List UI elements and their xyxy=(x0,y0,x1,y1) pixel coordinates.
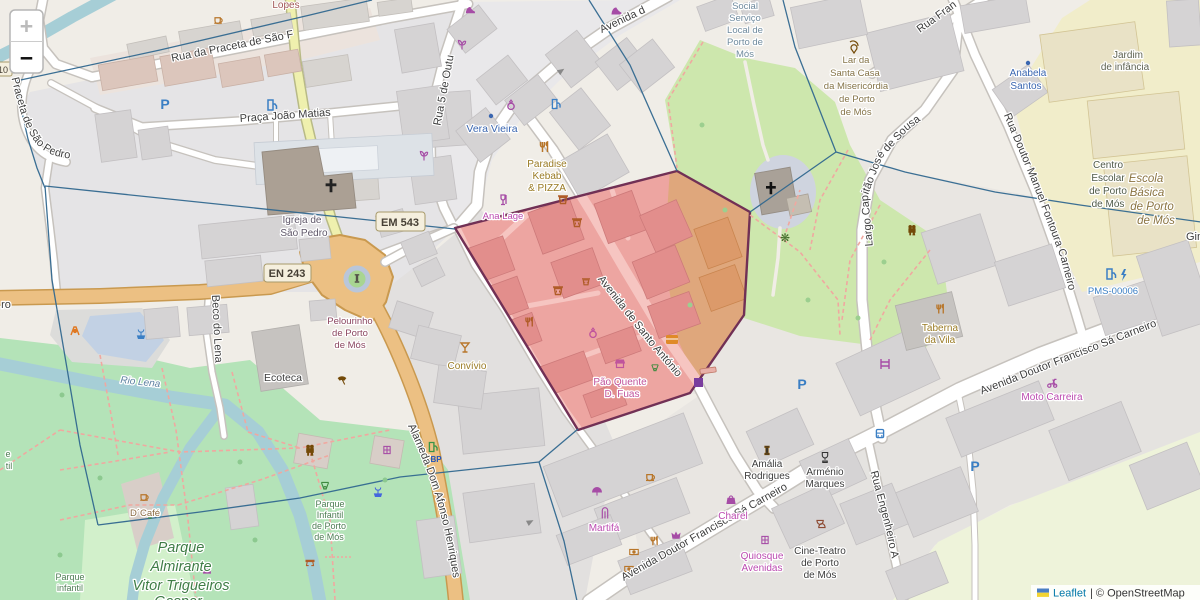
svg-text:e: e xyxy=(5,449,10,459)
svg-text:Vitor Trigueiros: Vitor Trigueiros xyxy=(133,578,230,594)
svg-text:Social: Social xyxy=(732,1,758,12)
svg-text:Igreja de: Igreja de xyxy=(283,215,322,226)
svg-text:EM 543: EM 543 xyxy=(381,217,419,229)
svg-text:EN 243: EN 243 xyxy=(269,268,306,280)
svg-text:Local de: Local de xyxy=(727,25,763,36)
svg-text:Santa Casa: Santa Casa xyxy=(830,68,880,79)
svg-text:Quiosque: Quiosque xyxy=(741,551,784,562)
svg-text:Mós: Mós xyxy=(736,49,754,60)
svg-text:Centro: Centro xyxy=(1093,160,1123,171)
svg-text:Serviço: Serviço xyxy=(729,13,761,24)
svg-text:Arménio: Arménio xyxy=(806,467,844,478)
svg-text:Jardim: Jardim xyxy=(1113,50,1143,61)
svg-text:de Porto: de Porto xyxy=(1089,186,1127,197)
svg-text:Almirante: Almirante xyxy=(149,559,211,575)
svg-text:D. Fuas: D. Fuas xyxy=(604,389,639,400)
svg-text:Rodrigues: Rodrigues xyxy=(744,471,790,482)
svg-text:de Porto: de Porto xyxy=(801,558,839,569)
svg-text:de Porto: de Porto xyxy=(312,521,346,531)
svg-text:Marques: Marques xyxy=(806,479,845,490)
svg-text:Escolar: Escolar xyxy=(1091,173,1125,184)
svg-text:❋: ❋ xyxy=(780,231,790,245)
svg-text:P: P xyxy=(797,376,806,392)
svg-text:Porto de: Porto de xyxy=(727,37,763,48)
svg-text:de Porto: de Porto xyxy=(1130,201,1174,213)
svg-text:P: P xyxy=(970,458,979,474)
svg-text:Parque: Parque xyxy=(55,572,84,582)
svg-text:de infância: de infância xyxy=(1101,62,1150,73)
svg-text:de Mós: de Mós xyxy=(1092,199,1125,210)
svg-text:de Mós: de Mós xyxy=(840,107,871,118)
svg-text:Santos: Santos xyxy=(1010,81,1041,92)
svg-text:Ecoteca: Ecoteca xyxy=(264,372,302,384)
svg-text:Amália: Amália xyxy=(752,459,783,470)
svg-text:Escola: Escola xyxy=(1129,173,1164,185)
svg-text:Taberna: Taberna xyxy=(922,323,959,334)
svg-text:Parque: Parque xyxy=(158,540,205,556)
svg-text:+: + xyxy=(20,13,33,39)
svg-text:& PIZZA: & PIZZA xyxy=(528,183,566,194)
svg-text:Infantil: Infantil xyxy=(317,510,344,520)
svg-text:Lopes: Lopes xyxy=(272,0,299,11)
svg-text:Convívio: Convívio xyxy=(448,361,487,372)
svg-text:Paradise: Paradise xyxy=(527,159,567,170)
svg-text:Charel: Charel xyxy=(718,511,747,522)
svg-text:Gimná: Gimná xyxy=(1186,231,1200,243)
svg-text:Cine-Teatro: Cine-Teatro xyxy=(794,546,846,557)
svg-text:de Mós: de Mós xyxy=(1137,215,1175,227)
svg-text:Leaflet: Leaflet xyxy=(1053,588,1086,600)
svg-text:Lar da: Lar da xyxy=(843,55,871,66)
svg-text:P: P xyxy=(160,96,169,112)
svg-text:−: − xyxy=(20,45,33,71)
svg-text:Ana Lage: Ana Lage xyxy=(483,211,524,222)
svg-text:| © OpenStreetMap: | © OpenStreetMap xyxy=(1090,588,1185,600)
svg-text:PMS-00006: PMS-00006 xyxy=(1088,286,1138,297)
svg-text:da Misericórdia: da Misericórdia xyxy=(824,81,889,92)
svg-text:Pelourinho: Pelourinho xyxy=(327,316,372,327)
svg-text:Kebab: Kebab xyxy=(533,171,562,182)
svg-text:Vera Vieira: Vera Vieira xyxy=(466,123,517,135)
svg-text:de Mós: de Mós xyxy=(804,570,837,581)
svg-text:Moto Carreira: Moto Carreira xyxy=(1021,392,1083,403)
svg-text:infantil: infantil xyxy=(57,583,83,593)
svg-text:Avenidas: Avenidas xyxy=(742,563,783,574)
svg-text:Pão Quente: Pão Quente xyxy=(593,377,647,388)
svg-text:Parque: Parque xyxy=(315,499,344,509)
svg-text:de Porto: de Porto xyxy=(332,328,368,339)
svg-text:de Mós: de Mós xyxy=(314,532,344,542)
svg-text:Martifá: Martifá xyxy=(589,523,620,534)
svg-text:São Pedro: São Pedro xyxy=(280,228,328,239)
svg-text:da Vila: da Vila xyxy=(925,335,956,346)
svg-text:Gaspar: Gaspar xyxy=(154,594,203,600)
svg-text:ro: ro xyxy=(1,299,11,311)
svg-text:de Porto: de Porto xyxy=(839,94,875,105)
svg-text:D´Café: D´Café xyxy=(130,508,160,519)
svg-text:Básica: Básica xyxy=(1130,187,1165,199)
svg-text:10: 10 xyxy=(0,65,8,75)
svg-text:til: til xyxy=(6,461,13,471)
svg-text:de Mós: de Mós xyxy=(334,340,365,351)
svg-text:Anabela: Anabela xyxy=(1010,68,1047,79)
